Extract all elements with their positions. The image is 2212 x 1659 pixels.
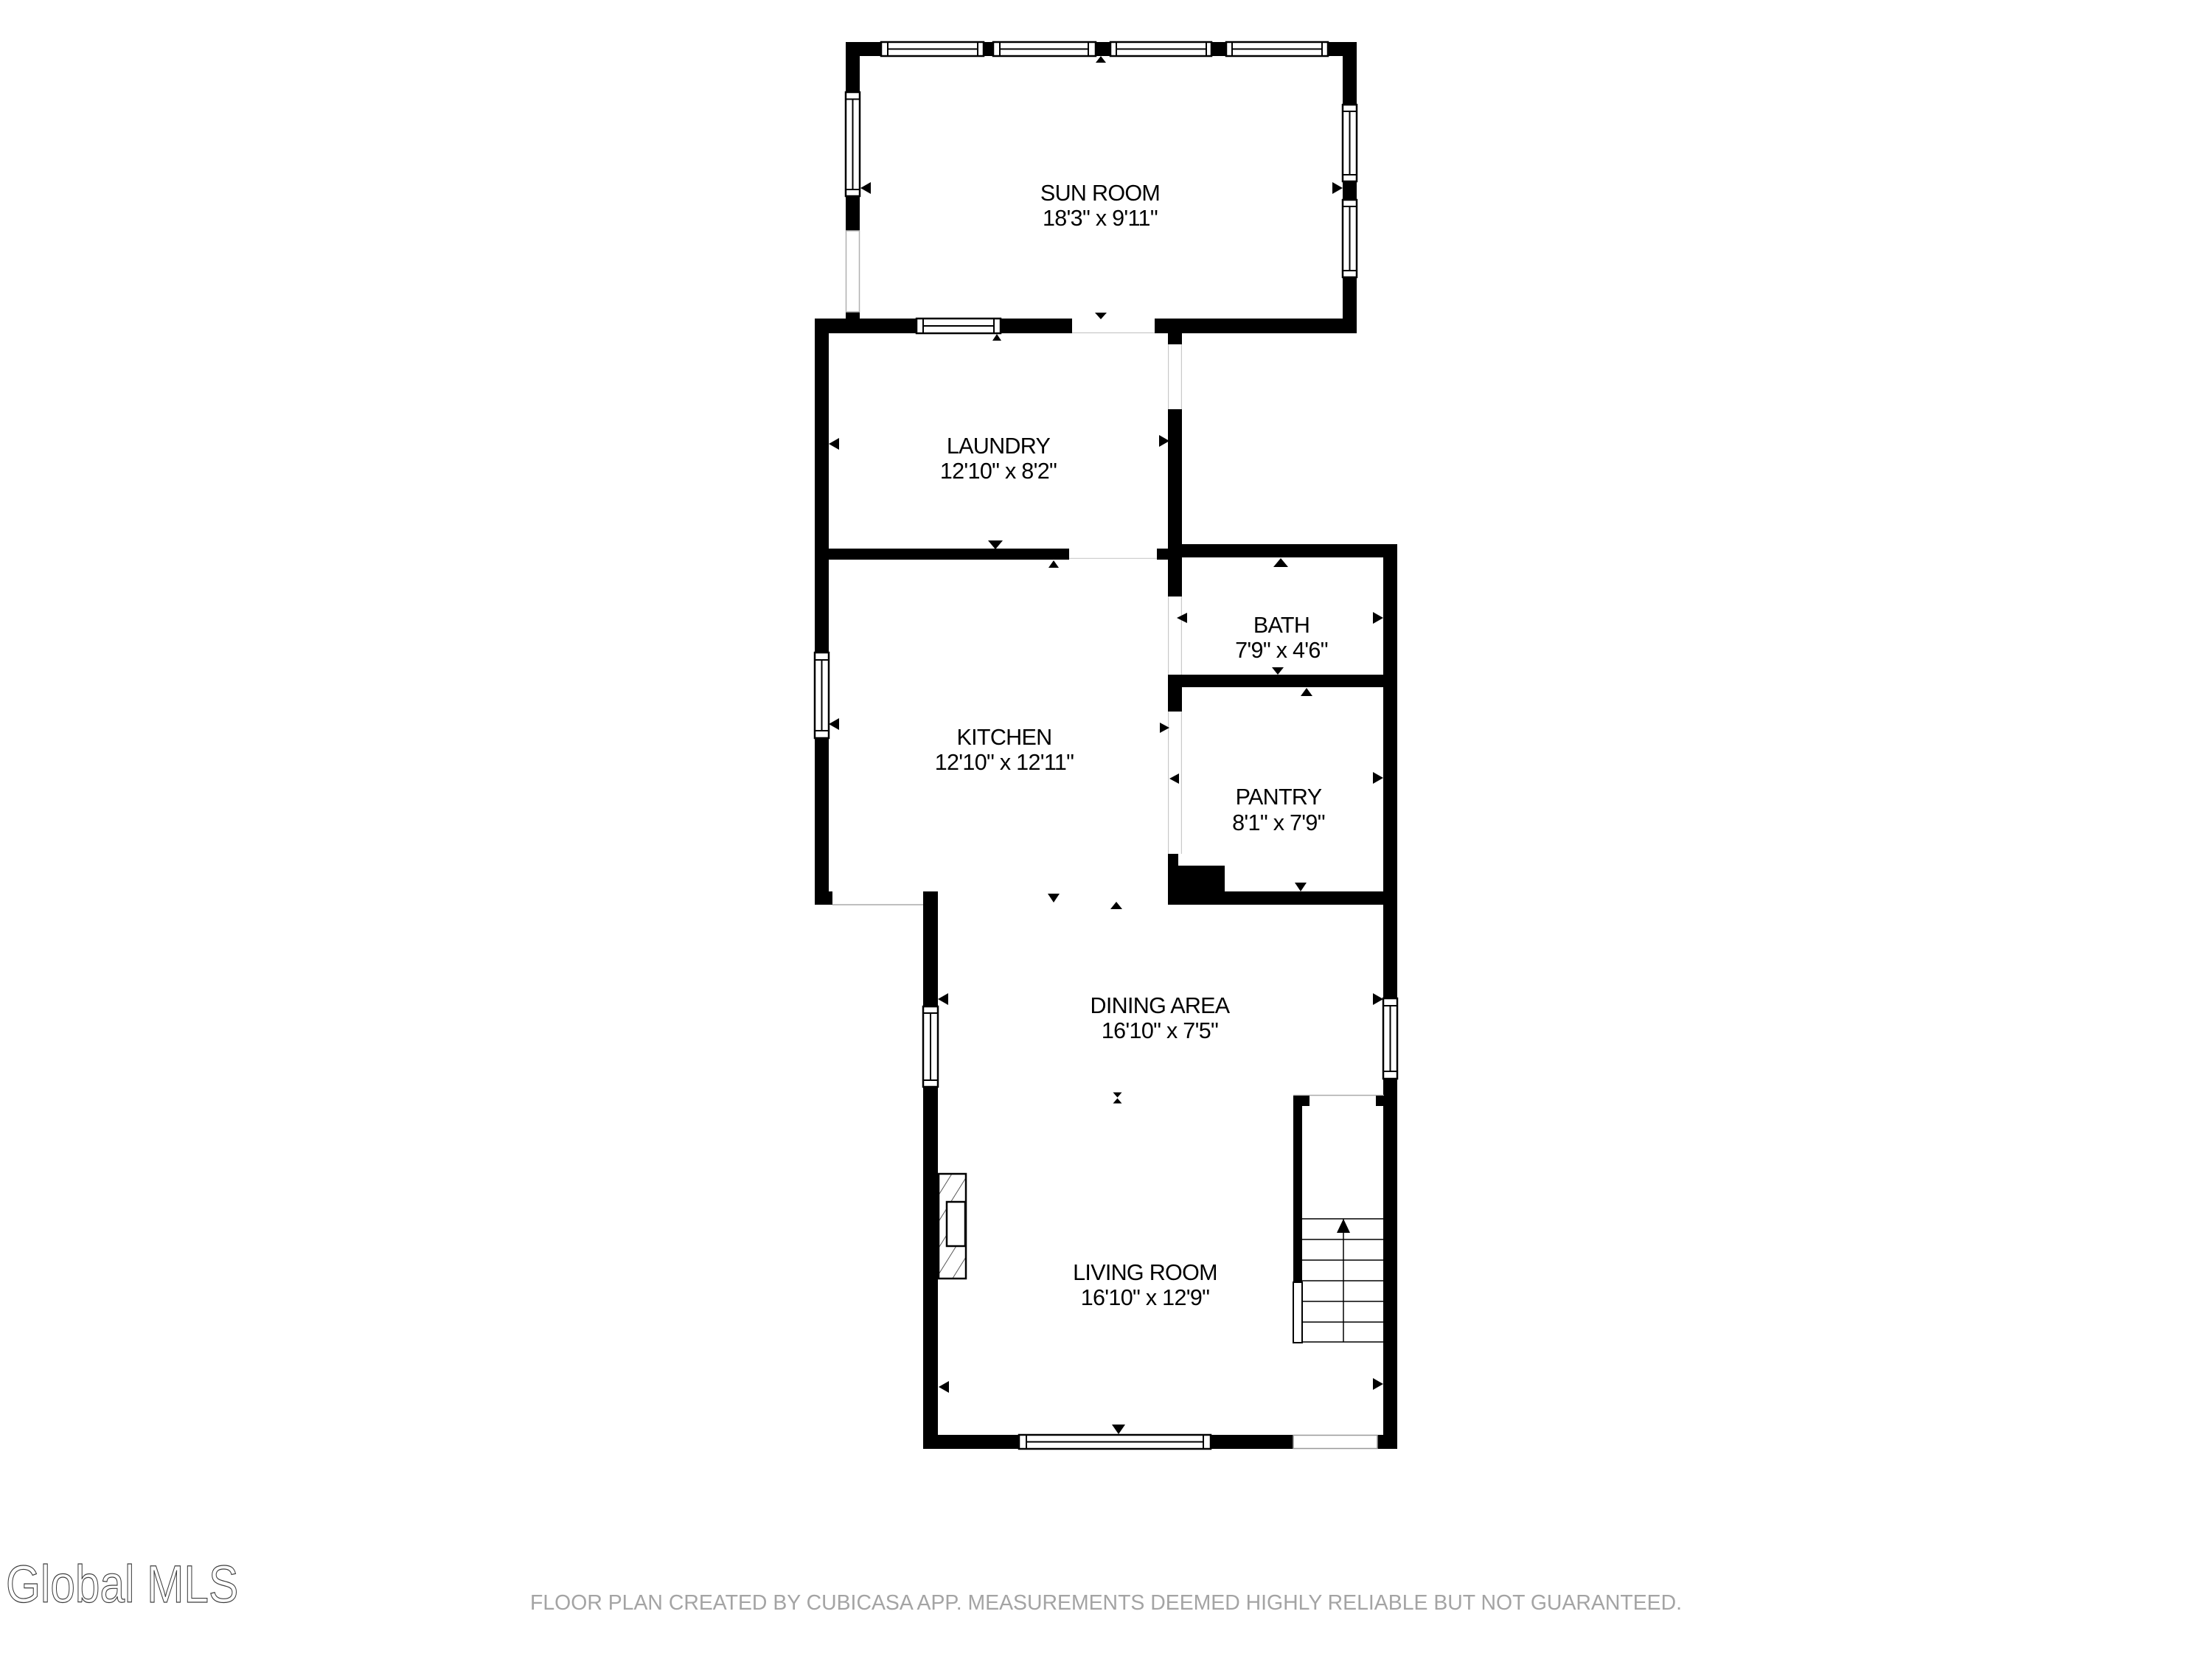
svg-text:12'10" x 8'2": 12'10" x 8'2" (940, 459, 1057, 484)
svg-text:16'10" x 12'9": 16'10" x 12'9" (1081, 1285, 1209, 1310)
svg-text:KITCHEN: KITCHEN (957, 725, 1052, 750)
svg-text:LAUNDRY: LAUNDRY (947, 434, 1051, 459)
svg-text:8'1" x 7'9": 8'1" x 7'9" (1232, 810, 1325, 835)
svg-text:18'3" x 9'11": 18'3" x 9'11" (1043, 206, 1158, 231)
svg-text:7'9" x 4'6": 7'9" x 4'6" (1235, 638, 1328, 663)
svg-text:12'10" x 12'11": 12'10" x 12'11" (935, 750, 1074, 775)
svg-text:SUN ROOM: SUN ROOM (1040, 181, 1160, 206)
svg-text:16'10" x 7'5": 16'10" x 7'5" (1102, 1018, 1218, 1043)
svg-text:PANTRY: PANTRY (1236, 785, 1322, 810)
svg-text:DINING AREA: DINING AREA (1091, 993, 1231, 1018)
svg-text:Global MLS: Global MLS (6, 1554, 238, 1613)
svg-text:FLOOR PLAN CREATED BY CUBICASA: FLOOR PLAN CREATED BY CUBICASA APP. MEAS… (530, 1591, 1682, 1615)
svg-text:LIVING ROOM: LIVING ROOM (1073, 1260, 1217, 1285)
svg-text:BATH: BATH (1253, 613, 1310, 638)
